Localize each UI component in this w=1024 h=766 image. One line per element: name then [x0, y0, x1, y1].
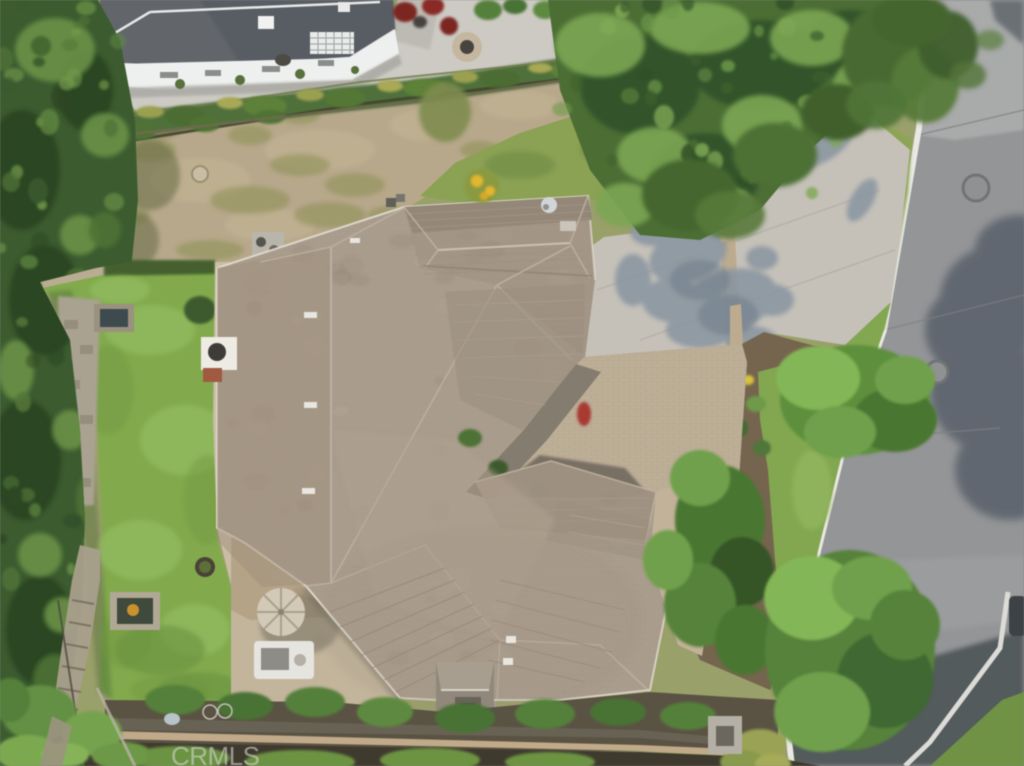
svg-text:CRMLS: CRMLS: [171, 741, 260, 766]
